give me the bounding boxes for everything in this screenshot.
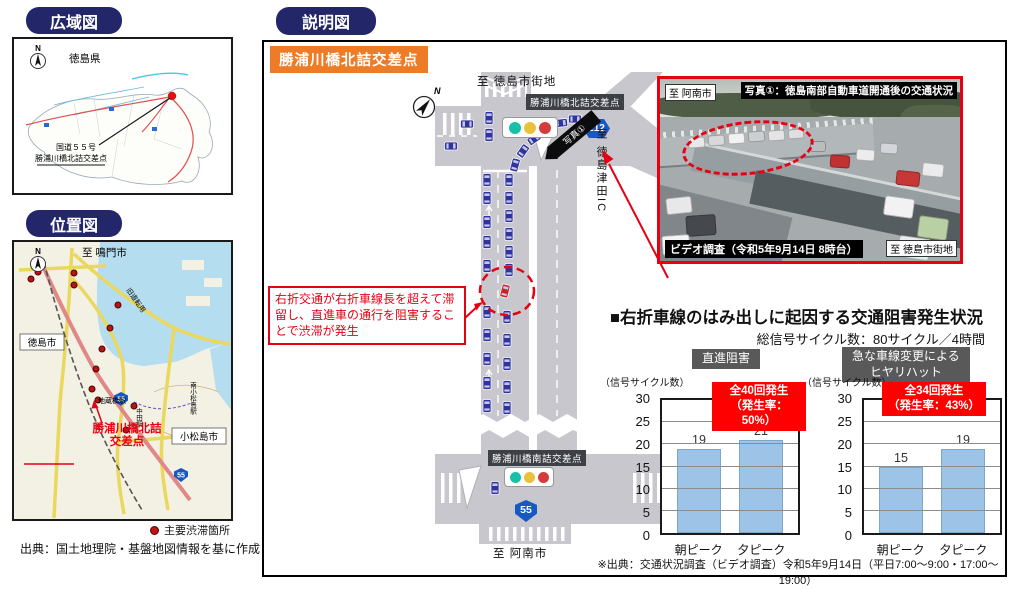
komatsushima-city-label: 小松島市	[172, 428, 226, 444]
traffic-photo: 写真①：徳島南部自動車道開通後の交通状況 至 阿南市 ビデオ調査（令和5年9月1…	[657, 76, 963, 264]
prefecture-label: 徳島県	[69, 52, 101, 65]
chart-footnote: ※出典：交通状況調査（ビデオ調査）令和5年9月14日（平日7:00～9:00・1…	[592, 556, 1004, 588]
gridline	[662, 466, 798, 467]
chart-straight-obstruction: 直進阻害 （信号サイクル数） 全40回発生 （発生率：50%） 05101520…	[600, 344, 806, 562]
wide-area-map-graphic: 国道５５号 勝浦川橋北詰交差点 徳島県 N	[14, 39, 231, 193]
car-icon	[503, 402, 511, 415]
compass-icon: N	[31, 44, 46, 69]
gridline	[864, 488, 1000, 489]
bar	[739, 440, 783, 533]
photo-car	[830, 154, 851, 168]
route-marker	[109, 107, 114, 111]
y-tick: 25	[622, 414, 650, 429]
photo-to-anan-tag: 至 阿南市	[665, 84, 716, 101]
congestion-annotation: 右折交通が右折車線長を超えて滞留し、直進車の通行を阻害することで渋滞が発生	[268, 286, 466, 345]
car-icon	[505, 192, 513, 205]
car-icon	[505, 210, 513, 223]
bar-value: 19	[938, 433, 988, 447]
svg-text:N: N	[35, 247, 41, 256]
photo-car	[856, 148, 876, 161]
y-tick: 5	[622, 505, 650, 520]
chart-title-badge: 直進阻害	[692, 349, 760, 369]
route-marker	[44, 123, 49, 127]
signal-red	[538, 472, 549, 483]
y-tick: 15	[622, 460, 650, 475]
route-marker	[152, 127, 157, 131]
to-anan-label: 至 阿南市	[493, 545, 547, 561]
car-icon	[483, 377, 491, 390]
photo-car	[921, 162, 944, 178]
bar	[677, 449, 721, 533]
signal-green	[510, 472, 521, 483]
y-tick: 25	[824, 414, 852, 429]
car-icon	[503, 381, 511, 394]
signal-yellow	[524, 472, 535, 483]
map-legend: 主要渋滞箇所	[150, 522, 230, 538]
expressway	[132, 73, 188, 79]
svg-text:小松島市: 小松島市	[180, 431, 219, 443]
gridline	[662, 443, 798, 444]
car-icon	[483, 306, 491, 319]
car-icon	[485, 112, 493, 125]
gridline	[864, 443, 1000, 444]
y-tick: 20	[622, 437, 650, 452]
page: 広域図 国道５５号 勝浦川橋北詰交差点 徳島県 N 位置図	[0, 0, 1018, 590]
chart-section-title: ■右折車線のはみ出しに起因する交通阻害発生状況	[610, 304, 1010, 328]
tokushima-city-label: 徳島市	[20, 334, 64, 350]
car-icon	[505, 264, 513, 277]
y-tick: 15	[824, 460, 852, 475]
diagram-title: 説明図	[276, 7, 376, 35]
y-tick: 5	[824, 505, 852, 520]
traffic-signal-icon	[504, 467, 554, 487]
chart-ylabel: （信号サイクル数）	[802, 374, 892, 389]
map-source: 出典：国土地理院・基盤地図情報を基に作成	[20, 540, 260, 557]
photo-car	[895, 170, 920, 187]
to-naruto-label: 至 鳴門市	[82, 246, 127, 259]
callout-route: 国道５５号	[56, 142, 96, 152]
y-tick: 30	[622, 391, 650, 406]
legend-label: 主要渋滞箇所	[164, 522, 230, 538]
pier	[186, 296, 210, 306]
car-icon	[503, 358, 511, 371]
intersection-callout: 勝浦川橋北詰 交差点	[77, 423, 177, 449]
wide-map-title: 広域図	[26, 7, 122, 34]
photo-car	[880, 142, 899, 154]
y-tick: 20	[824, 437, 852, 452]
chart-annotation: 全34回発生 （発生率：43%）	[882, 382, 986, 416]
photo-car	[883, 195, 915, 219]
photo-to-tokushima-tag: 至 徳島市街地	[886, 240, 957, 257]
car-icon	[483, 353, 491, 366]
car-icon	[483, 174, 491, 187]
signal-red	[539, 122, 551, 134]
car-icon	[483, 260, 491, 273]
location-map-graphic: 55 55 至 鳴門市 徳島市 小松島市 地蔵橋駅 旧道転用 中田駅 南小松島駅	[14, 242, 231, 519]
svg-text:N: N	[35, 44, 41, 53]
car-icon	[483, 236, 491, 249]
car-icon	[485, 129, 493, 142]
location-map: 55 55 至 鳴門市 徳島市 小松島市 地蔵橋駅 旧道転用 中田駅 南小松島駅	[12, 240, 233, 521]
gridline	[864, 466, 1000, 467]
y-tick: 0	[824, 528, 852, 543]
photo-pointer-arrow	[592, 142, 676, 284]
north-intersection-badge: 勝浦川橋北詰交差点	[526, 94, 624, 110]
bar-value: 19	[674, 433, 724, 447]
bar-slot: 19	[938, 400, 988, 533]
jizobashi-station-label: 地蔵橋駅	[98, 396, 126, 405]
chart-plot: 1519	[862, 398, 1002, 535]
car-icon	[483, 216, 491, 229]
car-icon	[505, 174, 513, 187]
bar	[879, 467, 923, 534]
wide-area-map: 国道５５号 勝浦川橋北詰交差点 徳島県 N	[12, 37, 233, 195]
chart-annotation: 全40回発生 （発生率：50%）	[712, 382, 806, 431]
callout-name: 勝浦川橋北詰交差点	[35, 153, 107, 163]
chart-yticks: 051015202530	[828, 398, 856, 535]
gridline	[662, 488, 798, 489]
car-icon	[491, 482, 499, 495]
photo-survey-tag: ビデオ調査（令和5年9月14日 8時台）	[665, 240, 863, 258]
bar	[941, 449, 985, 533]
chart-ylabel: （信号サイクル数）	[600, 374, 690, 389]
car-icon	[503, 334, 511, 347]
intersection-name-badge: 勝浦川橋北詰交差点	[270, 46, 428, 73]
prefecture-outline	[28, 88, 212, 184]
pier	[204, 278, 222, 287]
car-icon	[445, 142, 458, 150]
car-icon	[483, 192, 491, 205]
gridline	[662, 510, 798, 511]
chart-near-miss: 急な車線変更による ヒヤリハット （信号サイクル数） 全34回発生 （発生率：4…	[802, 344, 1008, 562]
car-icon	[505, 228, 513, 241]
car-icon	[483, 329, 491, 342]
chart-yticks: 051015202530	[626, 398, 654, 535]
car-icon	[461, 120, 474, 128]
car-icon	[483, 400, 491, 413]
gridline	[864, 510, 1000, 511]
location-map-title: 位置図	[26, 210, 122, 237]
congestion-dot-icon	[150, 526, 159, 535]
bar-value: 15	[876, 451, 926, 465]
car-icon	[503, 311, 511, 324]
signal-yellow	[524, 122, 536, 134]
traffic-signal-icon	[502, 117, 558, 138]
y-tick: 0	[622, 528, 650, 543]
signal-green	[509, 122, 521, 134]
photo-car	[685, 214, 716, 237]
gridline	[864, 421, 1000, 422]
svg-text:55: 55	[177, 473, 185, 480]
car-icon	[505, 246, 513, 259]
svg-text:徳島市: 徳島市	[28, 337, 57, 349]
bar-slot: 15	[876, 400, 926, 533]
chart-bars: 1519	[864, 400, 1000, 533]
y-tick: 10	[622, 482, 650, 497]
photo-caption: 写真①：徳島南部自動車道開通後の交通状況	[741, 82, 957, 99]
south-intersection-badge: 勝浦川橋南詰交差点	[488, 450, 586, 466]
pier	[182, 260, 204, 270]
y-tick: 10	[824, 482, 852, 497]
to-tokushima-label: 至 徳島市街地	[477, 73, 556, 89]
photo-car	[665, 196, 693, 216]
y-tick: 30	[824, 391, 852, 406]
